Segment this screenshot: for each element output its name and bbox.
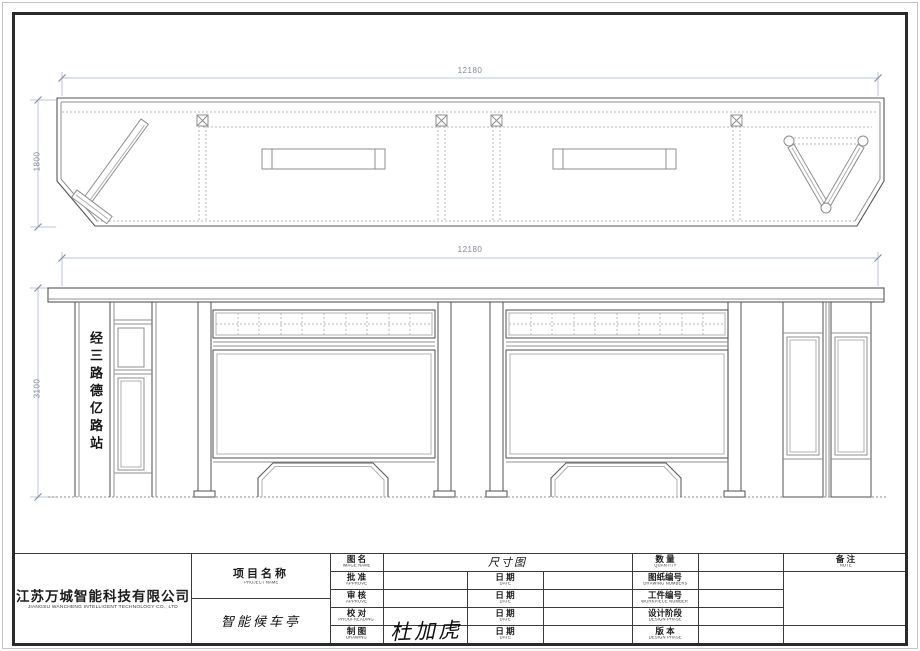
date-label-cn: 日 期 [495,609,514,618]
elevation-width-dimension [59,252,882,286]
version-label-cell: 版 本 DESIGN PHASE [633,625,697,643]
note-label-cell: 备 注 NOTE [784,553,907,571]
elevation-height-dim-label: 3100 [33,369,42,409]
tb-line [698,553,699,643]
date-label-cn: 日 期 [495,627,514,636]
workpiece-number-label-cn: 工件编号 [648,591,682,600]
date-label-cell: 日 期 DATE [468,571,542,589]
note-label-en: NOTE [839,564,851,568]
proofreading-label-cn: 校 对 [347,609,366,618]
audit-label-en: APPROVE [346,600,367,604]
drawing-name-label-en: IMAGE NAME [342,564,370,568]
date-label-cn: 日 期 [495,591,514,600]
drawing-sheet: 12180 1800 12180 3100 经三路德亿路站 江苏万城智能科技有限… [0,0,920,651]
design-phase-label-cell: 设计阶段 DESIGN PHASE [633,607,697,625]
shelter-bay [213,310,435,497]
grid-band [216,313,432,335]
date-label-cell: 日 期 DATE [468,589,542,607]
project-name-label-cn: 项目名称 [233,565,289,581]
elevation-roof [48,288,884,302]
company-name-cn: 江苏万城智能科技有限公司 [16,585,190,605]
tb-line [330,607,783,608]
cad-linework [0,0,920,553]
project-name-header-cell: 项目名称 PROJECT NAME [192,554,330,597]
drafter-label-cn: 制 图 [347,627,366,636]
approve-label-cn: 批 准 [347,573,366,582]
drawing-name-label-cn: 图 名 [347,555,366,564]
proofreading-label-cell: 校 对 PROOFREADING [331,607,382,625]
design-phase-label-en: DESIGN PHASE [648,618,681,622]
tb-line [543,571,544,643]
ad-panel [213,350,435,458]
version-label-en: DESIGN PHASE [648,636,681,640]
drawing-number-label-cell: 图纸编号 DRAWING NUMBERS [633,571,697,589]
plan-width-dim-label: 12180 [440,66,500,75]
workpiece-number-label-en: WORKPIECE NUMBER [642,600,689,604]
drawing-name-value-cell: 尺寸图 [384,553,631,571]
columns [194,302,745,497]
drawing-number-label-en: DRAWING NUMBERS [643,582,687,586]
quantity-label-cell: 数 量 QUANTITY [633,553,697,571]
approve-label-en: APPROVE [346,582,367,586]
note-label-cn: 备 注 [836,555,855,564]
project-name-label-en: PROJECT NAME [244,581,278,585]
plan-width-dimension [59,72,882,96]
date-label-en: DATE [499,582,510,586]
workpiece-number-label-cell: 工件编号 WORKPIECE NUMBER [633,589,697,607]
drawing-number-label-cn: 图纸编号 [648,573,682,582]
quantity-label-en: QUANTITY [654,564,676,568]
tb-line [330,589,783,590]
project-name-value-cell: 智能候车亭 [192,599,330,642]
date-label-cn: 日 期 [495,573,514,582]
date-label-en: DATE [499,618,510,622]
drawing-name-label-cell: 图 名 IMAGE NAME [331,553,382,571]
project-name-value: 智能候车亭 [221,611,301,630]
audit-label-cn: 审 核 [347,591,366,600]
quantity-label-cn: 数 量 [655,555,674,564]
drafter-label-en: DRAWING [346,636,367,640]
company-name-en: JIANGSU WANCHENG INTELLIGENT TECHNOLOGY … [28,605,178,610]
design-phase-label-cn: 设计阶段 [648,609,682,618]
plan-roof-outline [57,98,884,226]
drawing-name-value: 尺寸图 [488,554,527,570]
elevation-view [30,252,888,501]
station-sign-label: 经三路德亿路站 [82,331,109,483]
drafter-signature: 杜加虎 [389,613,482,648]
tb-line [330,571,905,572]
elevation-width-dim-label: 12180 [440,245,500,254]
drafter-label-cell: 制 图 DRAWING [331,625,382,643]
plan-depth-dim-label: 1800 [33,142,42,182]
proofreading-label-en: PROOFREADING [339,618,375,622]
shelter-bay [506,310,728,497]
version-label-cn: 版 本 [655,627,674,636]
approve-label-cell: 批 准 APPROVE [331,571,382,589]
date-label-en: DATE [499,636,510,640]
right-panel-assembly [783,302,871,497]
company-cell: 江苏万城智能科技有限公司 JIANGSU WANCHENG INTELLIGEN… [15,554,191,642]
plan-view [30,72,884,231]
date-label-en: DATE [499,600,510,604]
audit-label-cell: 审 核 APPROVE [331,589,382,607]
bench [258,463,388,497]
